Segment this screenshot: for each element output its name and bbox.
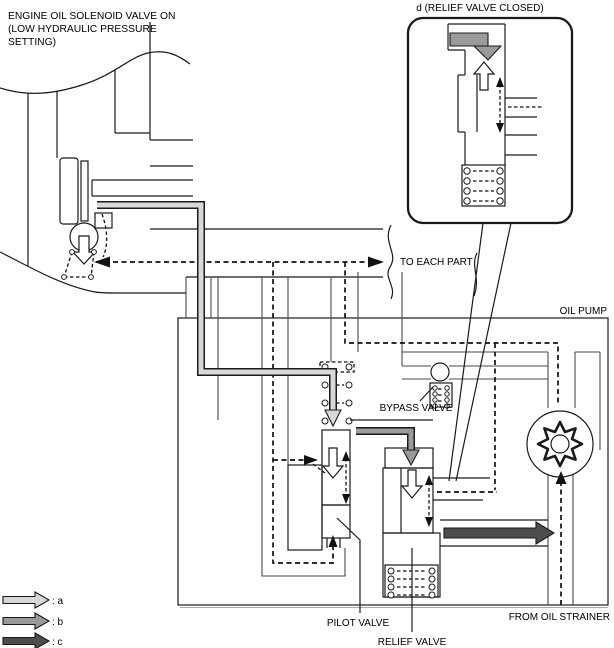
diagram-labels: ENGINE OIL SOLENOID VALVE ON (LOW HYDRAU… — [8, 3, 610, 648]
label-oil-pump: OIL PUMP — [560, 306, 608, 317]
pilot-flow-down-arrow — [323, 448, 343, 478]
relief-spool-travel-arrow — [425, 475, 433, 527]
flow-a-line — [97, 205, 341, 426]
label-relief-valve: RELIEF VALVE — [378, 637, 447, 648]
flow-b-arrowhead — [403, 450, 419, 465]
label-to-each-part: TO EACH PART — [400, 257, 473, 268]
pilot-left-chamber — [288, 465, 322, 550]
solenoid-body — [60, 158, 78, 224]
arrow-to-each-part — [368, 257, 384, 268]
pilot-pressure-lines — [94, 257, 567, 606]
legend-arrow-c-icon — [3, 633, 49, 648]
label-bypass-valve: BYPASS VALVE — [380, 403, 453, 414]
pilot-valve — [288, 362, 360, 613]
oil-pump-housing — [178, 272, 608, 608]
arrow-into-pilot-spool — [304, 455, 318, 465]
legend-label-b: : b — [52, 617, 64, 628]
relief-flow-down-arrow — [402, 470, 422, 498]
callout-spring — [462, 165, 505, 206]
pilot-spool-travel-arrow — [342, 451, 350, 504]
arrow-to-solenoid — [94, 257, 110, 268]
diagram-title-line2: (LOW HYDRAULIC PRESSURE — [8, 24, 157, 35]
gear-pump-icon — [527, 411, 593, 477]
legend-arrow-b-icon — [3, 613, 49, 629]
callout-spool-travel-arrow — [496, 77, 504, 133]
bypass-ball-icon — [431, 363, 449, 381]
diagram-title-line1: ENGINE OIL SOLENOID VALVE ON — [8, 11, 175, 22]
arrow-into-pilot-bottom — [329, 535, 338, 547]
pilot-leader-line — [337, 518, 360, 613]
arrow-into-pump — [556, 471, 567, 484]
label-pilot-valve: PILOT VALVE — [327, 618, 390, 629]
callout-flow-b-bar — [450, 33, 488, 46]
bypass-valve — [420, 363, 452, 408]
callout-flow-b-arrowhead — [474, 46, 501, 60]
legend-label-c: : c — [52, 637, 63, 648]
callout-title: d (RELIEF VALVE CLOSED) — [416, 3, 543, 14]
label-from-oil-strainer: FROM OIL STRAINER — [509, 612, 610, 623]
diagram-title-line3: SETTING) — [8, 37, 56, 48]
legend-arrow-a-icon — [3, 592, 49, 608]
flow-c-line — [444, 522, 554, 544]
hydraulic-diagram: : a : b : c ENGINE OIL SOLENOID VALVE ON… — [0, 0, 614, 648]
flow-a-arrowhead — [325, 410, 341, 426]
bypass-leader-line — [420, 387, 433, 401]
flow-c-arrow — [444, 522, 554, 544]
legend-label-a: : a — [52, 596, 64, 607]
solenoid-flow-down-arrow — [73, 236, 95, 264]
relief-valve — [350, 420, 548, 632]
legend: : a : b : c — [3, 592, 64, 648]
pipe-break-squiggle — [388, 225, 393, 299]
